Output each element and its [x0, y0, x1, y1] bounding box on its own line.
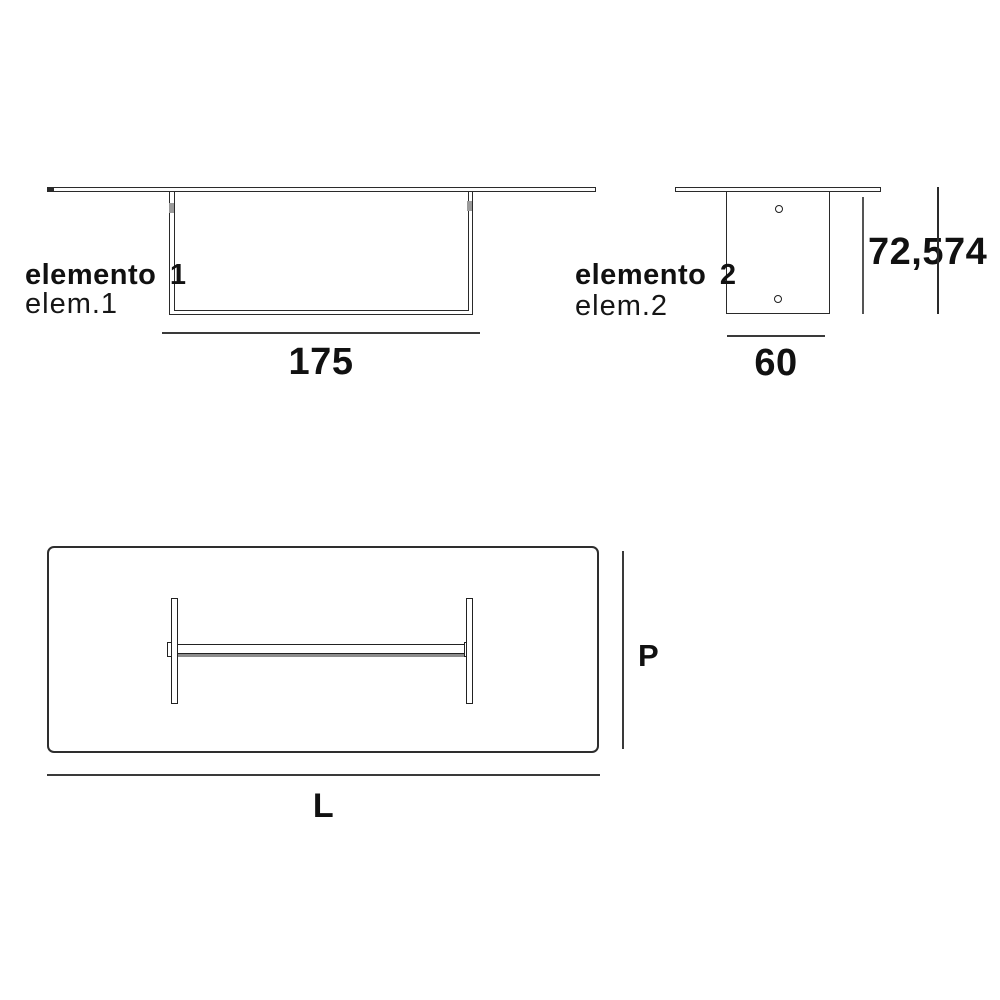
base-beam: [172, 644, 472, 654]
depth-dim-label: P: [638, 640, 659, 671]
side-width-dim-line: [162, 332, 480, 334]
joint-mark-left: [169, 203, 174, 213]
side-view-tabletop-edge-cap: [47, 188, 54, 192]
base-beam-shadow: [177, 654, 467, 657]
mount-hole-bottom: [774, 295, 782, 303]
side-view-pedestal-inner-line: [174, 192, 469, 311]
side-view-pedestal: [169, 192, 473, 315]
total-height-dim-value: 74: [944, 233, 987, 271]
end-width-dim-line: [727, 335, 825, 337]
depth-dim-line: [622, 551, 624, 749]
furniture-dimension-diagram: 175 elemento 1 elem.1 72,5 74 60 element…: [0, 0, 1000, 1000]
joint-mark-right: [467, 201, 472, 211]
leg-height-dim-value: 72,5: [868, 233, 944, 271]
side-view-label: elemento 1: [25, 261, 187, 290]
side-width-dim-value: 175: [162, 343, 480, 381]
side-view-sublabel: elem.1: [25, 290, 118, 319]
total-height-dim-line: [937, 187, 939, 314]
length-dim-line: [47, 774, 600, 776]
end-view-label: elemento 2: [575, 261, 737, 290]
leg-height-dim-line: [862, 197, 864, 314]
end-width-dim-value: 60: [727, 344, 825, 382]
base-plate-left: [171, 598, 178, 704]
base-plate-right: [466, 598, 473, 704]
end-view-sublabel: elem.2: [575, 292, 668, 321]
length-dim-label: L: [47, 789, 600, 823]
mount-hole-top: [775, 205, 783, 213]
